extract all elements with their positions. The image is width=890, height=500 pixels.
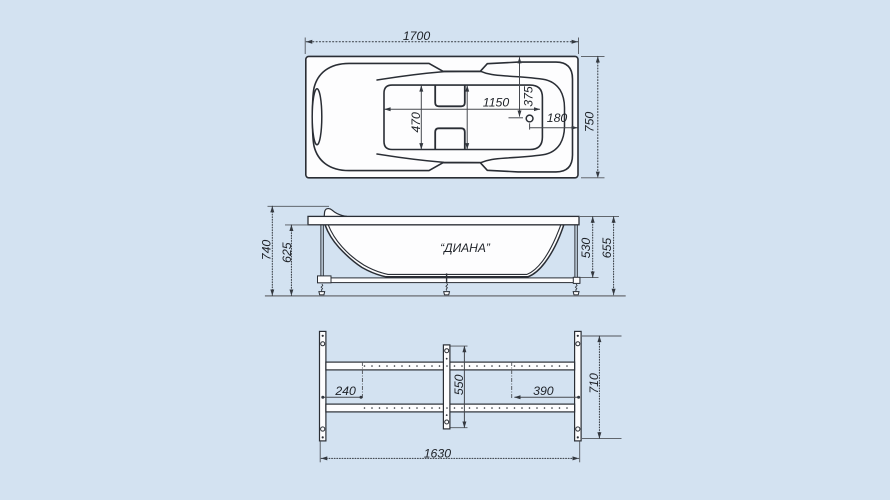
svg-text:1150: 1150 — [483, 95, 510, 109]
svg-text:375: 375 — [522, 86, 536, 107]
svg-text:625: 625 — [280, 242, 294, 263]
svg-text:1700: 1700 — [403, 29, 431, 43]
svg-text:470: 470 — [409, 112, 423, 133]
svg-text:740: 740 — [259, 240, 273, 261]
svg-text:550: 550 — [452, 374, 466, 395]
svg-text:390: 390 — [533, 384, 554, 398]
svg-text:1630: 1630 — [424, 447, 452, 461]
svg-text:“ДИАНА”: “ДИАНА” — [440, 241, 491, 255]
svg-text:530: 530 — [579, 238, 593, 259]
svg-text:180: 180 — [547, 111, 568, 125]
svg-text:750: 750 — [583, 112, 597, 133]
svg-text:240: 240 — [334, 384, 356, 398]
svg-text:655: 655 — [600, 238, 614, 259]
svg-text:710: 710 — [587, 373, 601, 394]
